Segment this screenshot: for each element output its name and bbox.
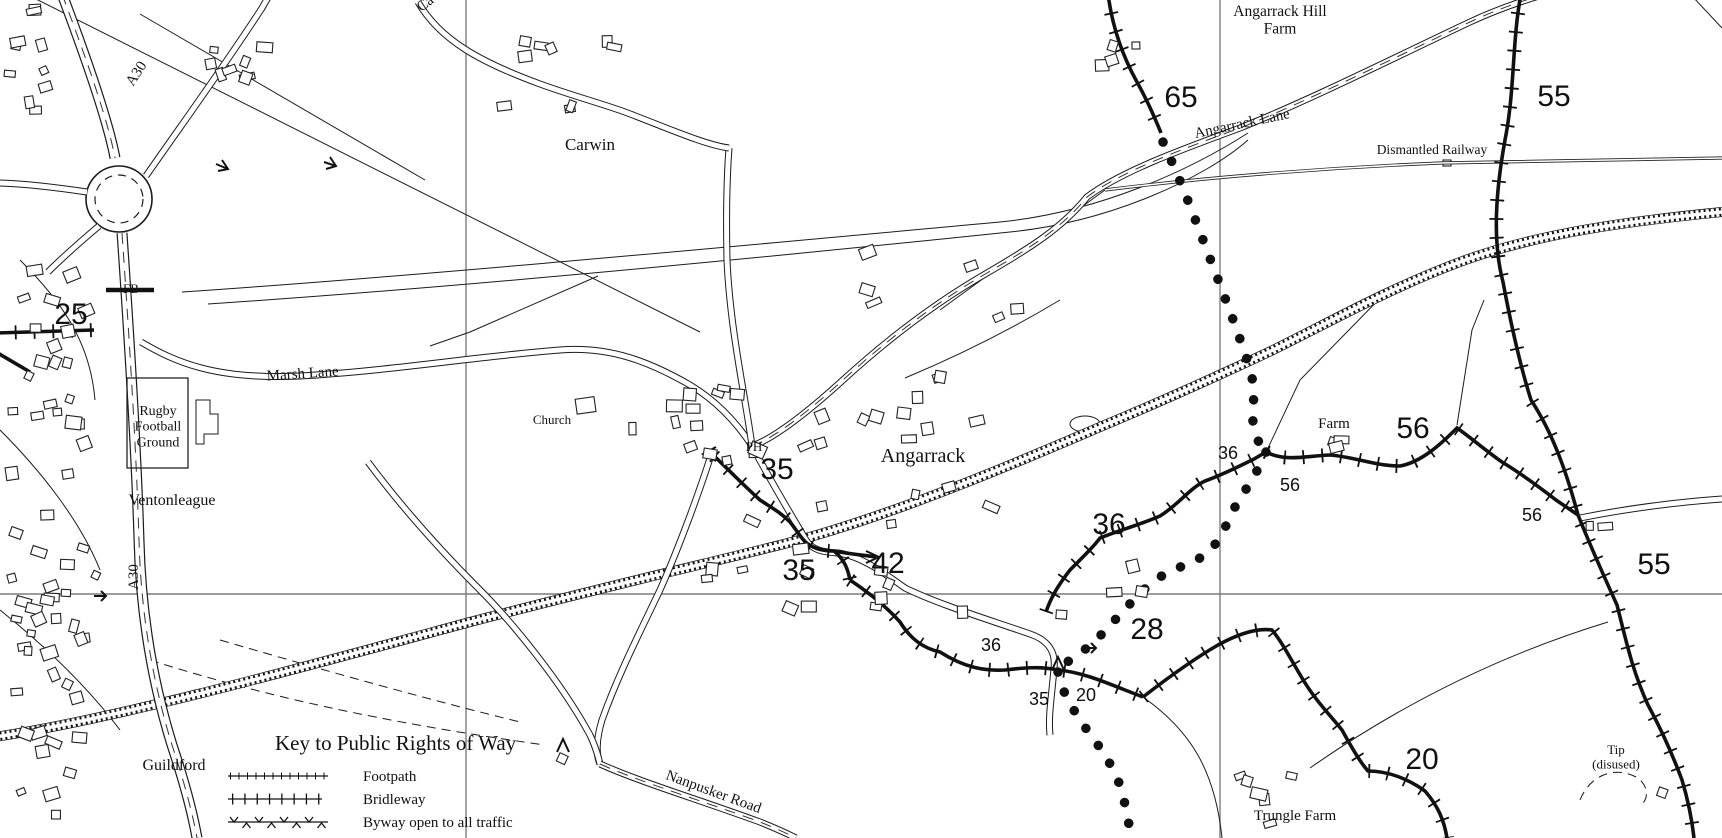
building bbox=[866, 297, 882, 308]
byway-chevron bbox=[293, 823, 301, 828]
building bbox=[957, 606, 968, 619]
building bbox=[17, 293, 30, 303]
building bbox=[814, 437, 827, 450]
path-number-36-b: 36 bbox=[1218, 443, 1238, 463]
building bbox=[684, 440, 698, 452]
building bbox=[10, 36, 26, 48]
trungle-farm-label: Trungle Farm bbox=[1254, 808, 1337, 824]
building bbox=[921, 422, 934, 436]
route-arrow bbox=[216, 160, 228, 171]
footbridge-label: FB bbox=[123, 281, 139, 296]
path-number-25: 25 bbox=[54, 298, 87, 331]
route-arrow bbox=[557, 739, 569, 752]
route-arrow bbox=[324, 157, 336, 169]
tip-outline bbox=[1580, 772, 1647, 806]
buildings bbox=[4, 4, 1613, 828]
public-rights-of-way bbox=[0, 0, 1694, 838]
farm-label: Farm bbox=[1318, 416, 1350, 432]
byway-chevron bbox=[280, 817, 288, 822]
building bbox=[911, 489, 920, 499]
building bbox=[686, 404, 700, 413]
building bbox=[982, 500, 1000, 513]
building bbox=[1598, 522, 1613, 531]
building bbox=[47, 667, 60, 682]
building bbox=[30, 324, 41, 332]
building bbox=[912, 391, 923, 403]
building bbox=[497, 101, 512, 111]
building bbox=[43, 786, 61, 801]
rugby-football-ground-label: RugbyFootballGround bbox=[135, 404, 182, 450]
field-line bbox=[182, 133, 1248, 292]
building bbox=[27, 630, 36, 638]
road-ca-partial-label: Ca bbox=[414, 0, 437, 15]
legend-title: Key to Public Rights of Way bbox=[275, 731, 517, 755]
building bbox=[8, 407, 18, 414]
building bbox=[60, 559, 74, 569]
path-number-20-a: 20 bbox=[1076, 685, 1096, 705]
building bbox=[41, 510, 54, 520]
path-number-36-c: 36 bbox=[981, 635, 1001, 655]
building bbox=[24, 371, 34, 382]
lane-north-south bbox=[727, 148, 752, 446]
field-line bbox=[430, 276, 598, 346]
building bbox=[62, 469, 74, 479]
marker-square bbox=[556, 753, 568, 765]
building bbox=[69, 691, 84, 705]
building bbox=[256, 42, 273, 53]
bridleway-36 bbox=[1046, 452, 1266, 612]
track-east bbox=[1580, 499, 1722, 518]
dismantled-railway-label: Dismantled Railway bbox=[1377, 142, 1488, 157]
building bbox=[53, 408, 62, 416]
public-house-label: PH bbox=[746, 439, 763, 454]
building bbox=[210, 46, 219, 53]
building bbox=[730, 388, 745, 400]
building bbox=[666, 400, 682, 412]
building bbox=[35, 38, 47, 52]
building bbox=[63, 267, 81, 284]
building bbox=[63, 767, 76, 778]
building bbox=[24, 646, 32, 655]
building bbox=[1106, 588, 1122, 597]
guildford-label: Guildford bbox=[142, 757, 205, 774]
building bbox=[1056, 610, 1067, 619]
small-structure bbox=[1657, 787, 1669, 799]
field-line bbox=[1310, 622, 1608, 768]
building bbox=[1135, 586, 1148, 598]
building bbox=[964, 260, 979, 272]
building bbox=[5, 466, 19, 480]
building bbox=[857, 413, 870, 426]
building bbox=[11, 615, 22, 623]
road-nanpusker bbox=[600, 764, 796, 838]
path-number-56-b: 56 bbox=[1280, 475, 1300, 495]
legend-bridleway-label: Bridleway bbox=[363, 792, 426, 808]
building bbox=[744, 514, 761, 527]
building bbox=[717, 384, 730, 392]
building bbox=[1132, 42, 1140, 49]
path-number-56-c: 56 bbox=[1522, 505, 1542, 525]
road-a30-south-label: A30 bbox=[126, 564, 142, 590]
building bbox=[31, 411, 44, 420]
building bbox=[62, 678, 74, 690]
path-number-20-b: 20 bbox=[1405, 743, 1438, 776]
building bbox=[1586, 521, 1593, 530]
church-building bbox=[575, 397, 596, 414]
building bbox=[47, 339, 62, 354]
path-number-35-b: 35 bbox=[782, 554, 815, 587]
bridleway-55 bbox=[1496, 0, 1694, 838]
building bbox=[9, 527, 23, 540]
carwin-label: Carwin bbox=[565, 135, 616, 154]
building bbox=[24, 96, 34, 109]
building bbox=[897, 407, 911, 420]
building bbox=[703, 448, 717, 460]
building bbox=[683, 388, 696, 401]
byway-chevron bbox=[268, 823, 276, 828]
building bbox=[519, 36, 531, 48]
building bbox=[69, 619, 80, 633]
legend-byway-label: Byway open to all traffic bbox=[363, 815, 513, 831]
building bbox=[798, 440, 814, 452]
building bbox=[11, 688, 23, 696]
village-south-street bbox=[752, 446, 1054, 735]
building bbox=[859, 283, 875, 297]
building bbox=[606, 42, 621, 52]
building bbox=[814, 408, 830, 424]
building bbox=[65, 394, 74, 404]
building bbox=[901, 435, 916, 443]
building bbox=[52, 810, 61, 819]
building bbox=[875, 592, 888, 605]
road-angarrack-lane bbox=[752, 0, 1560, 446]
building bbox=[801, 601, 816, 612]
path-number-55-b: 55 bbox=[1637, 548, 1670, 581]
os-map-screenshot: Key to Public Rights of Way Footpath Bri… bbox=[0, 0, 1722, 838]
building bbox=[16, 787, 26, 796]
building bbox=[48, 355, 61, 370]
building bbox=[518, 50, 533, 63]
path-number-36-a: 36 bbox=[1092, 508, 1125, 541]
bridleway-65 bbox=[1108, 0, 1161, 133]
building bbox=[934, 370, 947, 383]
building bbox=[671, 415, 681, 428]
track-carwin bbox=[418, 2, 729, 148]
building bbox=[1286, 771, 1298, 780]
path-number-28: 28 bbox=[1130, 613, 1163, 646]
building bbox=[858, 244, 876, 260]
map-canvas: Key to Public Rights of Way Footpath Bri… bbox=[0, 0, 1722, 838]
building bbox=[816, 501, 827, 512]
byway-chevron bbox=[255, 817, 263, 822]
building bbox=[26, 264, 43, 276]
building bbox=[31, 546, 48, 559]
road-marsh-lane bbox=[141, 342, 752, 446]
ventonleague-label: Ventonleague bbox=[128, 492, 215, 509]
building bbox=[1250, 787, 1268, 801]
building bbox=[91, 570, 101, 580]
footpath-dots-north bbox=[1163, 142, 1266, 452]
building bbox=[7, 573, 17, 583]
building bbox=[43, 579, 59, 593]
building bbox=[1011, 303, 1024, 314]
building bbox=[34, 355, 50, 370]
building bbox=[61, 589, 71, 596]
building bbox=[868, 409, 884, 424]
field-line bbox=[1457, 300, 1484, 425]
building bbox=[205, 58, 217, 70]
building bbox=[76, 435, 92, 451]
building bbox=[240, 55, 251, 68]
byway-chevron bbox=[230, 817, 238, 822]
railway bbox=[0, 158, 1722, 737]
byway-chevron bbox=[305, 817, 313, 822]
path-number-56-a: 56 bbox=[1396, 412, 1429, 445]
path-number-35-a: 35 bbox=[760, 453, 793, 486]
roundabout bbox=[86, 166, 152, 232]
building bbox=[782, 601, 799, 616]
bridleway-20-trungle bbox=[1143, 630, 1447, 838]
path-number-65: 65 bbox=[1164, 81, 1197, 114]
road-a30-north-label: A30 bbox=[123, 59, 150, 89]
building bbox=[886, 519, 896, 528]
building bbox=[43, 399, 57, 409]
building bbox=[690, 421, 702, 431]
building bbox=[51, 613, 61, 623]
route-arrow bbox=[94, 591, 106, 601]
building bbox=[72, 732, 87, 744]
building bbox=[629, 422, 636, 435]
field-line bbox=[140, 14, 425, 180]
building bbox=[1107, 40, 1118, 53]
legend: Key to Public Rights of Way Footpath Bri… bbox=[228, 731, 517, 831]
path-number-35-c: 35 bbox=[1029, 689, 1049, 709]
field-line bbox=[1692, 0, 1722, 28]
building bbox=[993, 312, 1005, 323]
building bbox=[701, 574, 712, 582]
building bbox=[1105, 53, 1119, 66]
building bbox=[1126, 559, 1140, 574]
road-west-stub bbox=[0, 183, 99, 272]
field-line bbox=[1143, 697, 1222, 838]
marsh-lane-label: Marsh Lane bbox=[266, 363, 339, 384]
angarrack-hill-farm-label: Angarrack HillFarm bbox=[1233, 3, 1326, 37]
byway-chevron bbox=[318, 823, 326, 828]
building bbox=[969, 415, 985, 427]
byway-chevron bbox=[243, 823, 251, 828]
tip-disused-label: Tip(disused) bbox=[1592, 742, 1640, 772]
building bbox=[4, 70, 16, 77]
angarrack-label: Angarrack bbox=[881, 445, 965, 467]
building bbox=[722, 455, 732, 465]
path-number-55-top: 55 bbox=[1537, 80, 1570, 113]
legend-footpath-label: Footpath bbox=[363, 769, 417, 785]
building bbox=[35, 744, 50, 758]
building bbox=[38, 81, 53, 93]
path-number-42: 42 bbox=[871, 547, 904, 580]
clubhouse-building bbox=[196, 400, 218, 444]
building bbox=[737, 566, 748, 574]
building bbox=[40, 595, 55, 606]
church-label: Church bbox=[533, 412, 572, 427]
road-northeast bbox=[146, 0, 270, 176]
building bbox=[62, 357, 72, 369]
building bbox=[39, 66, 49, 76]
building bbox=[65, 415, 82, 430]
